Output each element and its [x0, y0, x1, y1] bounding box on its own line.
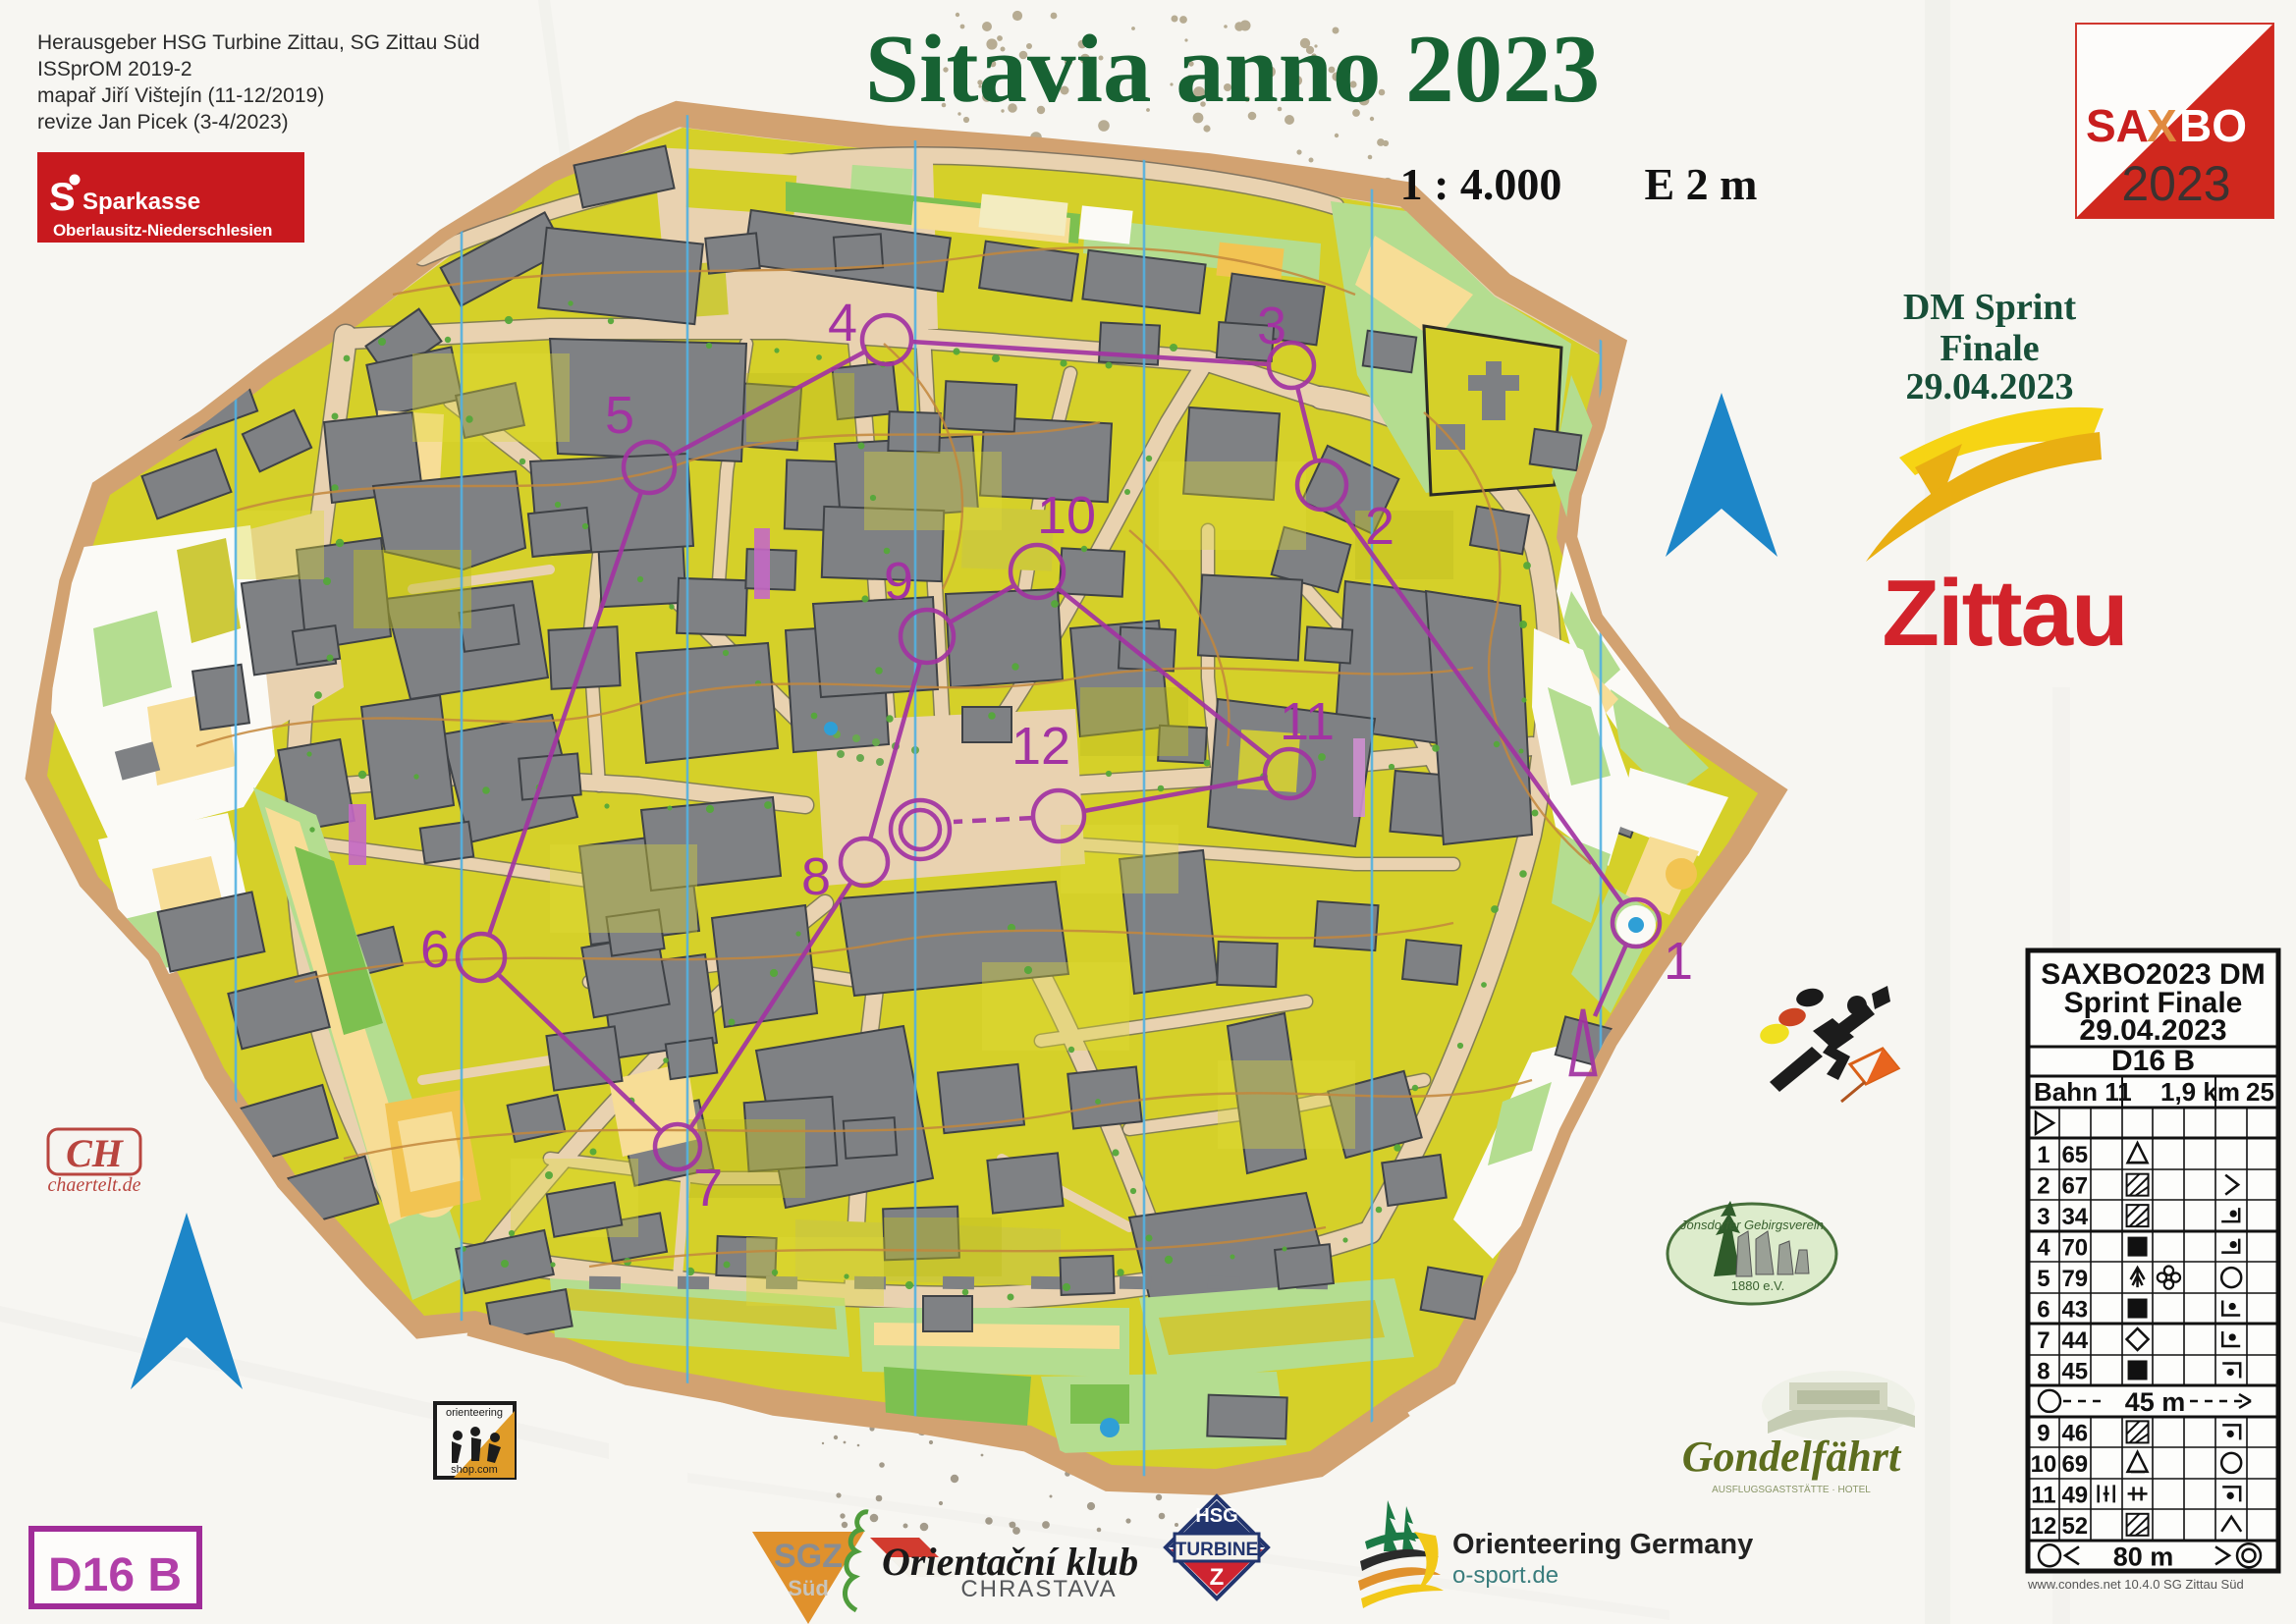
- svg-text:67: 67: [2061, 1173, 2088, 1200]
- svg-text:o-sport.de: o-sport.de: [1452, 1562, 1558, 1589]
- svg-text:5: 5: [605, 386, 634, 445]
- svg-text:7: 7: [2037, 1327, 2050, 1354]
- svg-text:SGZ: SGZ: [774, 1538, 843, 1575]
- svg-text:45 m: 45 m: [2125, 1387, 2186, 1417]
- svg-text:1 : 4.000: 1 : 4.000: [1400, 159, 1562, 209]
- svg-text:Sparkasse: Sparkasse: [82, 189, 200, 215]
- svg-text:5: 5: [2037, 1266, 2050, 1292]
- svg-text:Z: Z: [1210, 1564, 1225, 1591]
- svg-text:4: 4: [2037, 1235, 2050, 1262]
- svg-text:7: 7: [693, 1159, 723, 1218]
- svg-text:Süd: Süd: [788, 1576, 829, 1600]
- svg-text:Zittau: Zittau: [1882, 561, 2126, 666]
- svg-text:X: X: [2147, 100, 2177, 151]
- svg-text:3: 3: [1257, 297, 1286, 355]
- svg-text:Herausgeber HSG Turbine Zittau: Herausgeber HSG Turbine Zittau, SG Zitta…: [37, 31, 480, 54]
- svg-text:1,9 km: 1,9 km: [2160, 1077, 2240, 1107]
- svg-text:ISSprOM 2019-2: ISSprOM 2019-2: [37, 58, 192, 81]
- svg-text:Oberlausitz-Niederschlesien: Oberlausitz-Niederschlesien: [53, 221, 272, 240]
- svg-text:Bahn 11: Bahn 11: [2034, 1077, 2132, 1107]
- svg-text:shop.com: shop.com: [451, 1464, 498, 1476]
- svg-text:8: 8: [801, 847, 831, 906]
- svg-text:43: 43: [2061, 1297, 2088, 1324]
- svg-text:Sitavia anno 2023: Sitavia anno 2023: [865, 16, 1600, 123]
- svg-text:10: 10: [1037, 486, 1096, 545]
- svg-text:Gondelfährt: Gondelfährt: [1682, 1433, 1902, 1481]
- svg-text:1: 1: [1664, 932, 1693, 991]
- svg-text:Finale: Finale: [1940, 328, 2039, 369]
- svg-text:SA: SA: [2086, 100, 2149, 151]
- svg-text:2023: 2023: [2121, 156, 2230, 211]
- svg-text:1880 e.V.: 1880 e.V.: [1731, 1278, 1784, 1293]
- svg-text:12: 12: [1011, 717, 1070, 776]
- svg-text:D16 B: D16 B: [2111, 1045, 2195, 1077]
- svg-text:70: 70: [2061, 1235, 2088, 1262]
- svg-text:E 2 m: E 2 m: [1645, 159, 1758, 209]
- svg-text:9: 9: [2037, 1420, 2050, 1446]
- svg-text:CH: CH: [66, 1131, 125, 1175]
- svg-text:45: 45: [2061, 1358, 2088, 1384]
- svg-text:52: 52: [2061, 1513, 2088, 1540]
- svg-text:12: 12: [2031, 1513, 2057, 1540]
- svg-text:D16 B: D16 B: [48, 1549, 182, 1601]
- svg-text:69: 69: [2061, 1451, 2088, 1478]
- svg-text:65: 65: [2061, 1142, 2088, 1168]
- svg-text:1: 1: [2037, 1142, 2050, 1168]
- svg-text:6: 6: [2037, 1297, 2050, 1324]
- svg-text:orienteering: orienteering: [446, 1407, 503, 1419]
- svg-text:80 m: 80 m: [2113, 1542, 2174, 1571]
- svg-text:44: 44: [2061, 1327, 2088, 1354]
- svg-text:DM Sprint: DM Sprint: [1903, 287, 2077, 328]
- svg-text:CHRASTAVA: CHRASTAVA: [960, 1576, 1117, 1602]
- svg-text:8: 8: [2037, 1358, 2050, 1384]
- svg-text:chaertelt.de: chaertelt.de: [48, 1174, 141, 1196]
- svg-text:34: 34: [2061, 1204, 2088, 1230]
- svg-text:BO: BO: [2179, 100, 2247, 151]
- svg-text:6: 6: [420, 920, 450, 979]
- svg-text:4: 4: [828, 294, 857, 352]
- svg-text:2: 2: [2037, 1173, 2050, 1200]
- svg-text:www.condes.net 10.4.0 SG Zitta: www.condes.net 10.4.0 SG Zittau Süd: [2027, 1577, 2244, 1592]
- svg-text:revize Jan Picek (3-4/2023): revize Jan Picek (3-4/2023): [37, 111, 289, 134]
- svg-text:AUSFLUGSGASTSTÄTTE · HOTEL: AUSFLUGSGASTSTÄTTE · HOTEL: [1712, 1484, 1871, 1495]
- svg-text:49: 49: [2061, 1482, 2088, 1508]
- svg-text:25: 25: [2246, 1077, 2274, 1107]
- svg-text:3: 3: [2037, 1204, 2050, 1230]
- svg-text:29.04.2023: 29.04.2023: [2079, 1014, 2226, 1047]
- svg-text:10: 10: [2031, 1451, 2057, 1478]
- svg-text:mapař Jiří Vištejín (11-12/201: mapař Jiří Vištejín (11-12/2019): [37, 84, 324, 107]
- svg-text:TURBINE: TURBINE: [1175, 1540, 1258, 1560]
- svg-text:2: 2: [1365, 497, 1394, 556]
- svg-text:Orienteering Germany: Orienteering Germany: [1452, 1529, 1753, 1560]
- svg-text:11: 11: [2031, 1482, 2055, 1508]
- svg-text:79: 79: [2061, 1266, 2088, 1292]
- svg-text:HSG: HSG: [1195, 1505, 1237, 1527]
- svg-text:Jonsdorfer Gebirgsverein: Jonsdorfer Gebirgsverein: [1679, 1218, 1824, 1232]
- svg-text:29.04.2023: 29.04.2023: [1906, 366, 2074, 407]
- svg-text:9: 9: [884, 552, 913, 611]
- svg-text:46: 46: [2061, 1420, 2088, 1446]
- svg-text:11: 11: [1280, 692, 1335, 751]
